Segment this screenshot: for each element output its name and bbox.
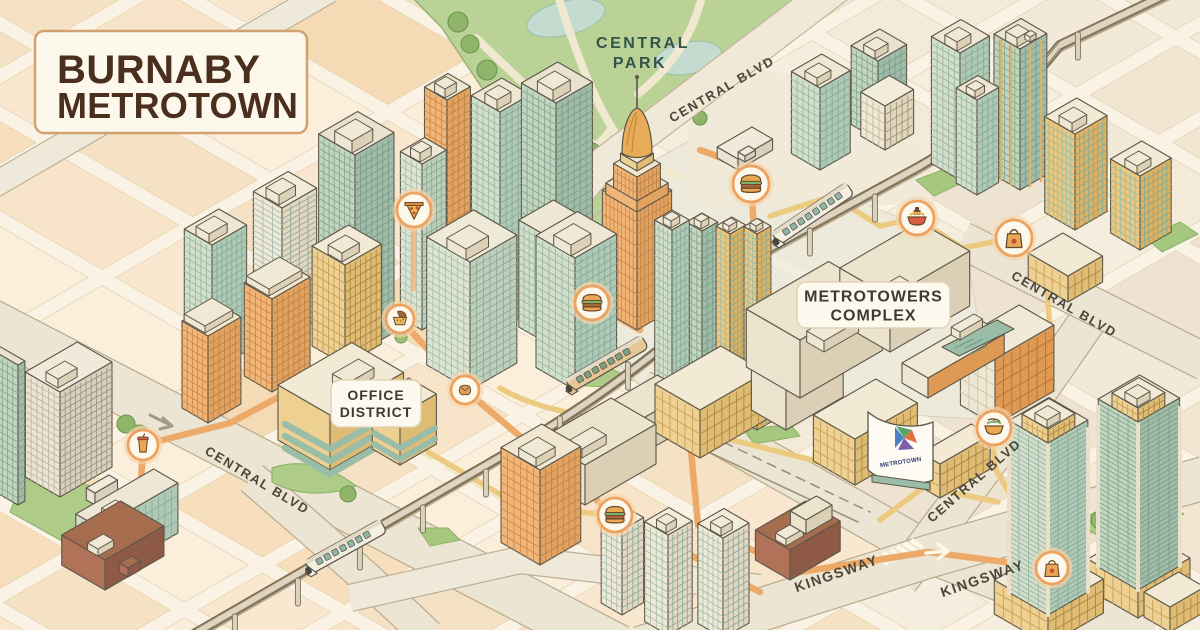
svg-text:COMPLEX: COMPLEX bbox=[830, 307, 916, 324]
svg-text:CENTRAL: CENTRAL bbox=[596, 35, 690, 52]
svg-text:PARK: PARK bbox=[613, 55, 667, 72]
svg-text:METROTOWERS: METROTOWERS bbox=[804, 288, 943, 305]
svg-text:METROTOWN: METROTOWN bbox=[57, 85, 298, 126]
svg-text:DISTRICT: DISTRICT bbox=[340, 404, 413, 420]
svg-text:OFFICE: OFFICE bbox=[347, 387, 404, 403]
